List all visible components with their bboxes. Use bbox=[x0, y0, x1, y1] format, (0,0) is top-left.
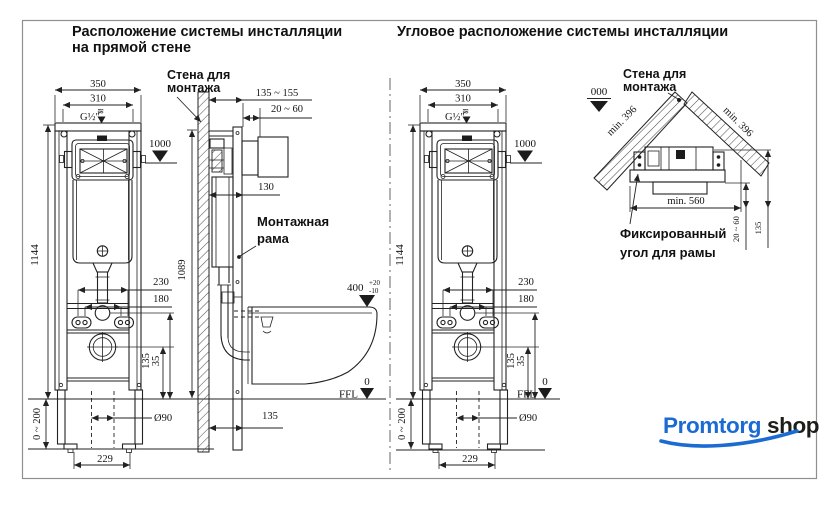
wall-label-corner-line2: монтажа bbox=[623, 80, 677, 94]
wall-label-line2: монтажа bbox=[167, 81, 221, 95]
dim-350-r: 350 bbox=[455, 79, 471, 90]
water-supply-symbol: ≋ bbox=[97, 106, 104, 116]
dim-20-60: 20 ~ 60 bbox=[271, 104, 303, 115]
dim-corner-135: 135 bbox=[753, 222, 763, 235]
fixed-angle-label-line2: угол для рамы bbox=[620, 245, 716, 260]
corner-wall-right bbox=[684, 92, 769, 176]
dim-400-plus: +20 bbox=[369, 279, 380, 287]
dim-230-r: 230 bbox=[518, 277, 534, 288]
seat-level-triangle bbox=[359, 295, 375, 307]
wall-label-line1: Стена для bbox=[167, 68, 230, 82]
water-supply-symbol-r: ≋ bbox=[462, 106, 469, 116]
dim-180-r: 180 bbox=[518, 294, 534, 305]
dim-230: 230 bbox=[153, 277, 169, 288]
finish-panel-side bbox=[258, 137, 288, 177]
dim-corner-20-60: 20 ~ 60 bbox=[731, 216, 741, 242]
datum-000: 000 bbox=[591, 86, 608, 98]
ffl-label: FFL bbox=[339, 389, 358, 401]
logo-text-dark: shop bbox=[767, 413, 819, 438]
wall-bracket-assembly bbox=[209, 131, 233, 174]
dim-0-200-r: 0 ~ 200 bbox=[397, 408, 408, 440]
toilet-bowl-profile bbox=[234, 307, 377, 384]
dim-180: 180 bbox=[153, 294, 169, 305]
datum-triangle bbox=[590, 101, 608, 112]
dim-229-r: 229 bbox=[462, 454, 478, 465]
dim-1000: 1000 bbox=[149, 138, 172, 150]
title-corner: Угловое расположение системы инсталляции bbox=[397, 24, 728, 40]
ffl-zero-r: 0 bbox=[542, 376, 548, 388]
diagram-straight-wall: 350 310 G½″ ≋ 1000 1144 230 180 135 35 Ø… bbox=[28, 68, 386, 469]
dim-drain-diameter: Ø90 bbox=[154, 413, 172, 424]
dim-1144-r: 1144 bbox=[394, 244, 406, 266]
fixed-angle-label-line1: Фиксированный bbox=[620, 226, 726, 241]
ffl-triangle-r bbox=[538, 388, 552, 399]
title-straight-wall-line1: Расположение системы инсталляции bbox=[72, 24, 342, 40]
dim-400-minus: -10 bbox=[369, 287, 379, 295]
frame-label-line2: рама bbox=[257, 231, 290, 246]
dim-0-200: 0 ~ 200 bbox=[32, 408, 43, 440]
technical-drawing-sheet: Расположение системы инсталляции на прям… bbox=[0, 0, 840, 505]
wall-label-leader bbox=[177, 97, 201, 122]
dim-400: 400 bbox=[347, 282, 364, 294]
corner-top-view: 000 Стена для монтажа min. 396 min. 396 bbox=[587, 67, 771, 260]
ffl-triangle bbox=[360, 388, 374, 399]
dim-1144: 1144 bbox=[29, 244, 41, 266]
dim-310-r: 310 bbox=[455, 94, 471, 105]
dim-35-r: 35 bbox=[516, 356, 527, 367]
promtorgshop-logo: Promtorg shop bbox=[661, 413, 819, 446]
corner-wall-left bbox=[594, 92, 687, 190]
dim-min396-left: min. 396 bbox=[605, 104, 639, 138]
dim-229: 229 bbox=[97, 454, 113, 465]
dim-1000-r: 1000 bbox=[514, 138, 537, 150]
wall-label-corner-line1: Стена для bbox=[623, 67, 686, 81]
logo-text-blue: Promtorg bbox=[663, 413, 761, 438]
dim-35: 35 bbox=[151, 356, 162, 367]
dim-310: 310 bbox=[90, 94, 106, 105]
cistern-side bbox=[212, 177, 233, 267]
dim-1089: 1089 bbox=[177, 260, 188, 281]
wall-hatch bbox=[198, 92, 209, 452]
ffl-label-r: FFL bbox=[517, 389, 536, 401]
frame-label-line1: Монтажная bbox=[257, 214, 329, 229]
dim-min560: min. 560 bbox=[667, 196, 704, 207]
dim-135-155: 135 ~ 155 bbox=[256, 88, 298, 99]
dim-wall-135: 135 bbox=[262, 411, 278, 422]
dim-350: 350 bbox=[90, 79, 106, 90]
diagram-corner: 350 310 G½″ ≋ 1000 1144 230 180 135 35 Ø… bbox=[394, 67, 771, 469]
dim-130: 130 bbox=[258, 182, 274, 193]
frame-top-view bbox=[630, 147, 725, 194]
dim-drain-diameter-r: Ø90 bbox=[519, 413, 537, 424]
flush-access-box-side bbox=[242, 141, 258, 175]
ffl-zero: 0 bbox=[364, 376, 370, 388]
title-straight-wall-line2: на прямой стене bbox=[72, 40, 191, 56]
mounting-frame-rail bbox=[233, 127, 242, 450]
